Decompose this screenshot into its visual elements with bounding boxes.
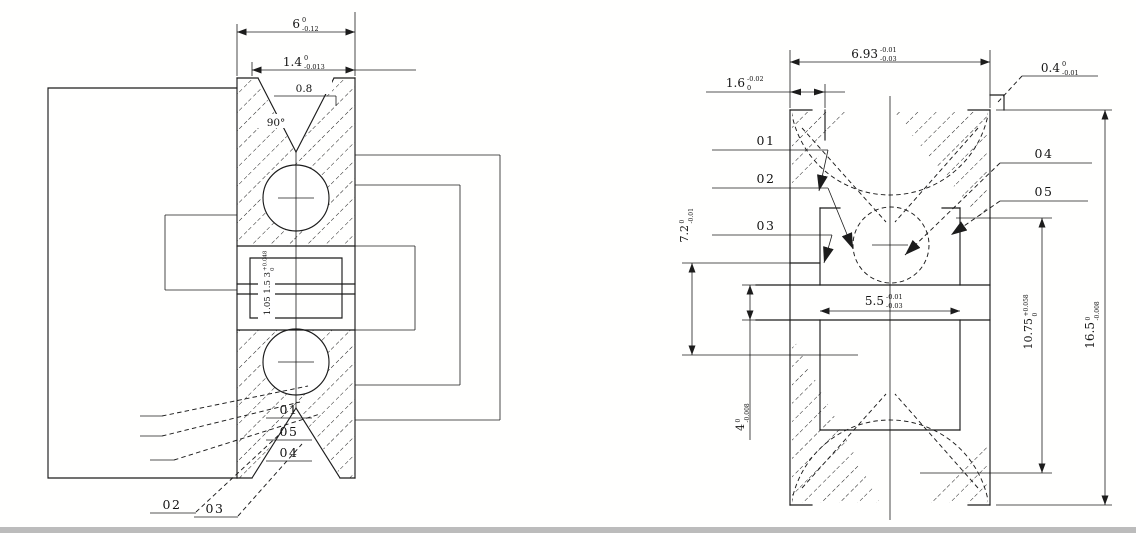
- svg-text:0: 0: [679, 220, 686, 224]
- svg-text:6.93: 6.93: [851, 47, 878, 61]
- svg-text:-0.01: -0.01: [880, 46, 897, 54]
- svg-text:0: 0: [747, 84, 751, 92]
- dim-left-groove-angle: 90°: [267, 117, 286, 129]
- svg-text:-0.01: -0.01: [1062, 69, 1079, 77]
- svg-text:-0.008: -0.008: [744, 403, 751, 422]
- bearing-section-drawing: 6 0 -0.12 1.4 0 -0.013 0.8 90° 1.05 1.5 …: [0, 0, 1136, 533]
- svg-text:-0.03: -0.03: [886, 302, 903, 310]
- svg-text:-0.008: -0.008: [1094, 301, 1101, 320]
- svg-text:0: 0: [735, 419, 742, 423]
- right-dimensions: 6.93 -0.01 -0.03 1.6 -0.02 0 0.4 0 -0.01…: [678, 46, 1112, 505]
- dim-right-lip: 1.6 -0.02 0: [726, 75, 764, 92]
- right-label-03: 03: [757, 218, 776, 233]
- scan-edge: [0, 527, 1136, 533]
- technical-drawing-page: 6 0 -0.12 1.4 0 -0.013 0.8 90° 1.05 1.5 …: [0, 0, 1136, 533]
- svg-text:0: 0: [1085, 317, 1092, 321]
- svg-text:-0.03: -0.03: [880, 55, 897, 63]
- dim-left-step: 0.8: [296, 83, 313, 95]
- svg-text:5.5: 5.5: [865, 294, 884, 308]
- right-label-05: 05: [1035, 184, 1054, 199]
- left-part-labels: 01 05 04 02 03: [140, 386, 320, 517]
- left-label-01: 01: [280, 402, 299, 417]
- svg-text:-0.01: -0.01: [688, 208, 695, 223]
- svg-text:-0.12: -0.12: [302, 25, 319, 33]
- svg-text:0: 0: [302, 16, 306, 24]
- dim-right-step: 0.4 0 -0.01: [998, 60, 1098, 102]
- dim-left-groove-width: 1.4 0 -0.013: [283, 54, 325, 71]
- svg-text:0: 0: [304, 54, 308, 62]
- svg-text:16.5: 16.5: [1083, 322, 1097, 349]
- svg-text:+0.058: +0.058: [1023, 294, 1030, 316]
- svg-text:10.75: 10.75: [1022, 318, 1035, 350]
- right-figure: 6.93 -0.01 -0.03 1.6 -0.02 0 0.4 0 -0.01…: [678, 0, 1112, 533]
- svg-text:0: 0: [1032, 313, 1039, 317]
- dim-right-hub-width: 5.5 -0.01 -0.03: [865, 293, 903, 310]
- svg-text:-0.02: -0.02: [747, 75, 764, 83]
- right-part-labels: 01 02 03 04 05: [712, 133, 1092, 263]
- dim-left-width: 6 0 -0.12: [292, 16, 318, 33]
- svg-text:4: 4: [734, 424, 747, 431]
- svg-text:-0.013: -0.013: [304, 63, 325, 71]
- right-label-01: 01: [757, 133, 776, 148]
- svg-text:1.4: 1.4: [283, 55, 302, 69]
- svg-text:0: 0: [1062, 60, 1066, 68]
- dim-right-bore: 4 0 -0.008: [734, 403, 751, 431]
- dim-right-groove-depth: 7.2 0 -0.01: [678, 208, 695, 242]
- left-figure: 6 0 -0.12 1.4 0 -0.013 0.8 90° 1.05 1.5 …: [48, 12, 500, 517]
- dim-right-width: 6.93 -0.01 -0.03: [851, 46, 896, 63]
- svg-text:1.05 1.5 3: 1.05 1.5 3: [263, 272, 273, 315]
- dim-right-flange-dia: 10.75 +0.058 0: [1022, 294, 1039, 349]
- left-label-05: 05: [280, 424, 299, 439]
- dim-left-axle: 1.05 1.5 3 +0.048 0: [258, 250, 276, 322]
- right-label-04: 04: [1035, 146, 1054, 161]
- svg-text:6: 6: [292, 17, 300, 31]
- svg-text:-0.01: -0.01: [886, 293, 903, 301]
- svg-text:+0.048: +0.048: [263, 250, 269, 271]
- dim-right-outer-dia: 16.5 0 -0.008: [1083, 301, 1101, 349]
- left-label-02: 02: [163, 497, 182, 512]
- svg-text:0: 0: [270, 267, 276, 271]
- left-label-03: 03: [206, 501, 225, 516]
- svg-text:1.6: 1.6: [726, 76, 745, 90]
- right-label-02: 02: [757, 171, 776, 186]
- svg-text:0.4: 0.4: [1041, 61, 1060, 75]
- left-label-04: 04: [280, 445, 299, 460]
- svg-text:7.2: 7.2: [678, 225, 691, 243]
